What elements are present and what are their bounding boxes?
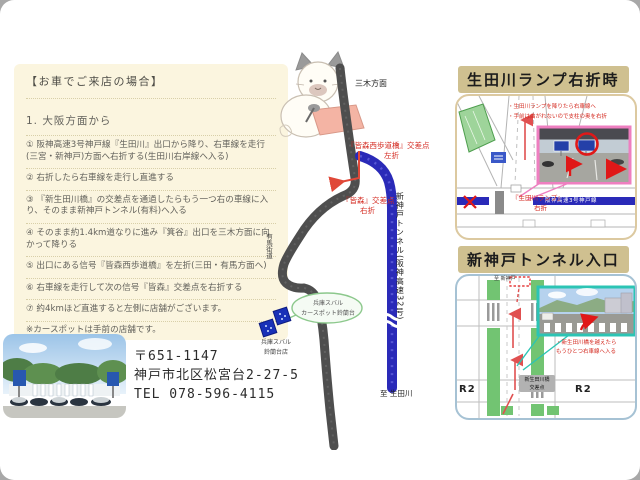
road-sign-blue <box>491 152 506 163</box>
tunnel-photo-inset <box>538 287 635 335</box>
tunnel-section-title: 新神戸トンネル入口 <box>458 246 629 273</box>
to-ikutagawa-label: 至 生田川 <box>380 389 412 399</box>
dealership-photo-art <box>3 334 126 418</box>
dealership-photo <box>3 334 126 418</box>
shin-ikutagawa-bridge-crossing-label: 新生田川橋 交差点 <box>519 375 555 392</box>
shop-bubble-line2: カースポット鈴蘭台 <box>296 309 360 319</box>
right-turn-label: 右折 <box>360 206 375 216</box>
tunnel-note-2: もうひとつ右車線へ入る <box>556 348 616 357</box>
park-block <box>459 104 495 152</box>
left-turn-label: 左折 <box>384 151 399 161</box>
access-map-page: 【お車でご来店の場合】 1. 大阪方面から ① 阪神高速3号神戸線『生田川』出口… <box>0 0 640 480</box>
shop-name-text: 兵庫スバル 鈴蘭台店 <box>252 338 300 357</box>
shop-name-line1: 兵庫スバル <box>252 338 300 348</box>
ikutagawa-ramp-label: 『生田川ランプ』 <box>512 194 564 202</box>
ramp-note-2: ・手前は曲がれないので支柱の奥を右折 <box>508 113 607 122</box>
ikutagawa-section-title: 生田川ランプ右折時 <box>458 66 629 93</box>
route2-label-right: R2 <box>575 383 592 396</box>
street-sign-gray <box>495 191 504 214</box>
route2-label-left: R2 <box>459 383 476 396</box>
shop-name-line2: 鈴蘭台店 <box>252 348 300 358</box>
ramp-right-turn-label: 右折 <box>534 204 547 212</box>
arima-road-label: 有馬街道 <box>264 233 272 259</box>
ramp-photo-inset <box>538 127 630 183</box>
miki-direction-label: 三木方面 <box>355 79 387 89</box>
crossing-line2: 交差点 <box>519 384 555 392</box>
crossing-line1: 新生田川橋 <box>519 376 555 384</box>
tunnel-road <box>360 156 392 388</box>
to-shinkobe-label: 至 新神戸 <box>494 276 516 283</box>
subaru-logo-signs <box>259 307 291 337</box>
ramp-note-1: ・生田川ランプを降りたら右車線へ <box>508 103 596 112</box>
tunnel-road-label: 新神戸トンネル(阪神高速32号) <box>394 192 404 357</box>
shop-bubble-text: 兵庫スバル カースポット鈴蘭台 <box>296 299 360 318</box>
tunnel-note-1: ・新生田川橋を越えたら <box>556 339 617 348</box>
minamorinishi-crossing-label: 『皆森西歩道橋』交差点 <box>347 141 430 151</box>
minamori-crossing-label: 『皆森』交差点 <box>342 196 395 206</box>
shop-bubble-line1: 兵庫スバル <box>296 299 360 309</box>
